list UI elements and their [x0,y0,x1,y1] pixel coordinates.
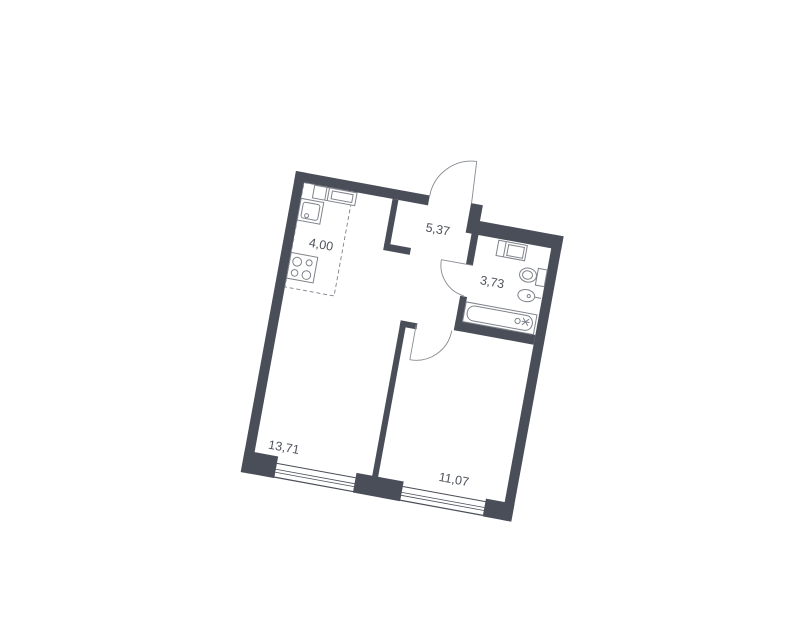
page-background: 4,00 5,37 3,73 13,71 11,07 [0,0,800,629]
wall-left-exterior [241,171,306,474]
room-area-label-bathroom: 3,73 [479,273,506,291]
kitchen-sink-symbol [297,198,324,224]
wall-bottom-left-pier [241,450,278,478]
room-area-label-hallway: 5,37 [425,220,452,238]
entrance-door-symbol [430,154,479,203]
wall-bottom-middle-pier [353,473,404,501]
wall-kitchen-hallway-foot [383,243,411,255]
wall-living-bedroom [372,320,407,480]
floorplan-drawing: 4,00 5,37 3,73 13,71 11,07 [223,114,606,546]
bathroom-door-symbol [436,260,473,297]
room-area-label-bedroom: 11,07 [438,470,470,489]
room-area-label-living-room: 13,71 [267,438,300,457]
wall-kitchen-hallway [384,199,398,246]
walls-layer [241,171,567,522]
toilet-symbol [518,265,547,287]
bedroom-door-symbol [410,324,452,366]
room-area-label-kitchen: 4,00 [308,236,335,254]
stove-symbol [287,252,318,282]
washing-machine-symbol [496,240,527,260]
window-bedroom [400,486,485,515]
window-living-room [274,463,355,491]
fixtures-layer [285,183,555,335]
bathroom-sink-symbol [517,288,542,304]
doors-layer [400,154,491,368]
wall-bathroom-left-upper [466,230,479,266]
